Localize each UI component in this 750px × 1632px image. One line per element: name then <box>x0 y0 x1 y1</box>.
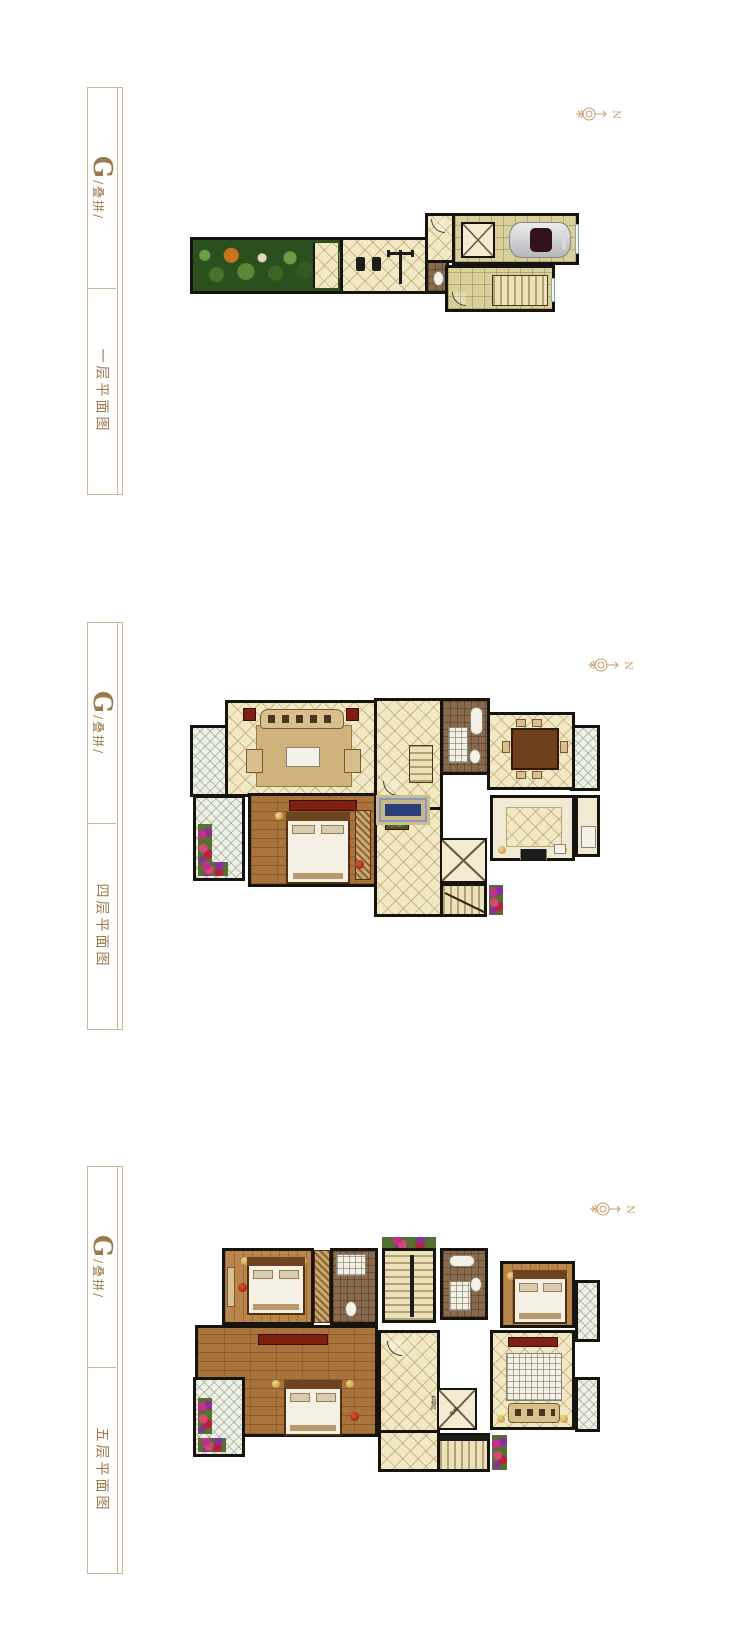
kitchen <box>490 795 575 861</box>
bed-runner <box>293 873 343 879</box>
floor5-label-box: G/叠拼/ 五层平面图 <box>87 1166 123 1574</box>
staircase-l5-down <box>437 1433 490 1472</box>
bed-runner <box>290 1425 335 1431</box>
lamp-icon <box>346 1380 354 1388</box>
staircase-l4-up <box>409 745 433 783</box>
bed <box>286 812 350 884</box>
balcony-right-bottom <box>575 1377 600 1432</box>
unit-suffix: /叠拼/ <box>91 180 105 220</box>
elevator-x-icon <box>442 840 485 881</box>
utility-room <box>575 795 600 857</box>
flowers <box>198 1438 226 1452</box>
gym-weight <box>411 250 414 257</box>
hall-upper <box>374 698 443 810</box>
staircase-l4-down <box>440 883 487 917</box>
lamp-icon <box>497 1415 505 1423</box>
bed <box>513 1270 567 1324</box>
door-arc <box>387 1341 402 1356</box>
garage <box>452 213 579 265</box>
elevator-l4 <box>440 838 487 883</box>
bed-console <box>289 800 357 811</box>
compass-n-letter: N <box>624 1205 635 1214</box>
cloakroom-label: 衣帽间 <box>430 1395 435 1410</box>
wardrobe <box>314 1250 330 1323</box>
flowers <box>198 824 212 866</box>
stove-icon <box>520 849 547 860</box>
flowers <box>489 885 503 915</box>
toilet-icon <box>345 1301 357 1317</box>
balcony-left-bottom <box>193 795 245 881</box>
floor5-name-cell: 五层平面图 <box>88 1367 116 1573</box>
sofa-long <box>260 709 344 729</box>
console-red <box>508 1337 558 1347</box>
bed-runner <box>519 1313 561 1319</box>
flowers <box>492 1435 507 1470</box>
vanity-icon <box>449 1281 471 1311</box>
lamp-icon <box>275 812 283 820</box>
floor5-unit-cell: G/叠拼/ <box>88 1167 116 1367</box>
gym-room <box>340 237 432 294</box>
garden-room <box>190 237 343 294</box>
gym-weight <box>387 250 390 257</box>
bathtub-icon <box>449 1255 475 1267</box>
bed <box>284 1380 342 1436</box>
vanity-icon <box>448 727 468 763</box>
toilet-icon <box>433 271 444 286</box>
toilet-icon <box>470 1277 482 1292</box>
elevator-x-icon <box>463 224 493 256</box>
pot-icon <box>498 846 506 854</box>
sink-icon <box>554 844 566 854</box>
unit-label: G/叠拼/ <box>87 156 117 220</box>
unit-label: G/叠拼/ <box>87 691 117 755</box>
headboard <box>286 812 350 821</box>
lamp-icon <box>272 1380 280 1388</box>
gym-barbell <box>390 252 411 255</box>
unit-letter: G <box>87 1235 117 1259</box>
living-room <box>225 700 377 797</box>
armchair-right <box>344 749 361 773</box>
balcony-left-bottom <box>193 1377 245 1457</box>
stair-hall <box>445 265 555 312</box>
study-room <box>490 1330 575 1430</box>
desk-chair <box>238 1283 247 1292</box>
elevator-l5: 电梯 <box>437 1388 477 1430</box>
unit-label: G/叠拼/ <box>87 1235 117 1299</box>
pillow <box>519 1283 538 1292</box>
garage-window <box>575 224 579 254</box>
lamp-icon <box>560 1415 568 1423</box>
chair <box>532 719 542 727</box>
bedroom-tl <box>222 1248 314 1325</box>
coffee-table <box>286 747 320 767</box>
floor5-title: 五层平面图 <box>92 1428 112 1513</box>
pillow <box>290 1393 311 1402</box>
door-arc <box>431 219 445 233</box>
bed <box>247 1257 305 1315</box>
kitchen-island-rug <box>506 807 562 847</box>
side-table-red <box>346 708 359 721</box>
chair <box>502 741 510 753</box>
pillow <box>292 825 315 834</box>
stair-rail <box>445 892 487 914</box>
gym-rack-bar <box>399 250 402 284</box>
stair-rail <box>410 1255 414 1317</box>
pillow <box>253 1270 274 1279</box>
floor4-label-box: G/叠拼/ 四层平面图 <box>87 622 123 1030</box>
headboard <box>513 1270 567 1279</box>
flowers <box>198 1398 212 1434</box>
compass-n-letter: N <box>622 661 633 670</box>
wardrobe <box>355 810 371 880</box>
bathroom-l5-left <box>330 1248 378 1325</box>
entry-hall <box>425 213 455 263</box>
chair <box>560 741 568 753</box>
flowers <box>198 862 228 876</box>
unit-suffix: /叠拼/ <box>91 715 105 755</box>
bed-console <box>258 1334 328 1345</box>
bathtub-icon <box>470 707 483 735</box>
desk <box>227 1267 235 1307</box>
pillow <box>321 825 344 834</box>
door-arc <box>452 292 466 306</box>
toilet-icon <box>469 749 481 764</box>
floor4-unit-cell: G/叠拼/ <box>88 623 116 823</box>
dining-room <box>487 712 575 790</box>
floorplan-level1 <box>190 210 582 312</box>
hall-rug-blue <box>376 795 430 825</box>
stair-edge <box>440 1436 487 1441</box>
staircase-l1 <box>492 275 548 306</box>
unit-suffix: /叠拼/ <box>91 1259 105 1299</box>
pillow <box>543 1283 562 1292</box>
chair <box>532 771 542 779</box>
floor4-title: 四层平面图 <box>92 884 112 969</box>
chair <box>516 719 526 727</box>
study-rug <box>506 1353 562 1401</box>
gym-bench-icon <box>372 257 381 271</box>
floorplan-level4 <box>190 655 600 917</box>
car-icon <box>509 222 571 258</box>
floor4-name-cell: 四层平面图 <box>88 823 116 1029</box>
chair <box>516 771 526 779</box>
bathroom-l4 <box>440 698 490 775</box>
unit-letter: G <box>87 691 117 715</box>
balcony-left-top <box>190 725 228 797</box>
floor1-label-box: G/叠拼/ 一层平面图 <box>87 87 123 495</box>
compass-north-1: N <box>574 101 622 127</box>
headboard <box>247 1257 305 1266</box>
red-vase <box>350 1412 359 1421</box>
door-arc <box>383 781 398 796</box>
bedroom-tr <box>500 1261 575 1328</box>
fridge-icon <box>581 826 596 848</box>
floor1-name-cell: 一层平面图 <box>88 288 116 494</box>
gym-bench-icon <box>356 257 365 271</box>
pillow <box>316 1393 337 1402</box>
shower-tiles <box>336 1254 366 1276</box>
floor1-title: 一层平面图 <box>92 349 112 434</box>
balcony-right-top <box>575 1280 600 1342</box>
floor1-unit-cell: G/叠拼/ <box>88 88 116 288</box>
brochure-page: G/叠拼/ 一层平面图 N <box>0 0 750 1632</box>
bathroom-l5-right <box>440 1248 488 1320</box>
bedroom-l4 <box>248 793 377 887</box>
unit-letter: G <box>87 156 117 180</box>
staircase-l5-core <box>382 1248 436 1323</box>
sofa <box>508 1403 560 1423</box>
pillow <box>279 1270 300 1279</box>
compass-n-letter: N <box>610 110 621 119</box>
landing <box>378 1430 440 1472</box>
red-vase <box>355 860 364 869</box>
floorplan-level5: 衣帽间 电梯 <box>190 1185 600 1472</box>
side-table-red <box>243 708 256 721</box>
dining-table <box>511 728 559 770</box>
armchair-left <box>246 749 263 773</box>
compass-arrow-icon <box>574 101 610 127</box>
elevator-shaft <box>461 222 495 258</box>
hall-window <box>551 278 555 302</box>
bed-runner <box>253 1304 298 1310</box>
headboard <box>284 1380 342 1389</box>
garden-entry <box>313 243 338 288</box>
